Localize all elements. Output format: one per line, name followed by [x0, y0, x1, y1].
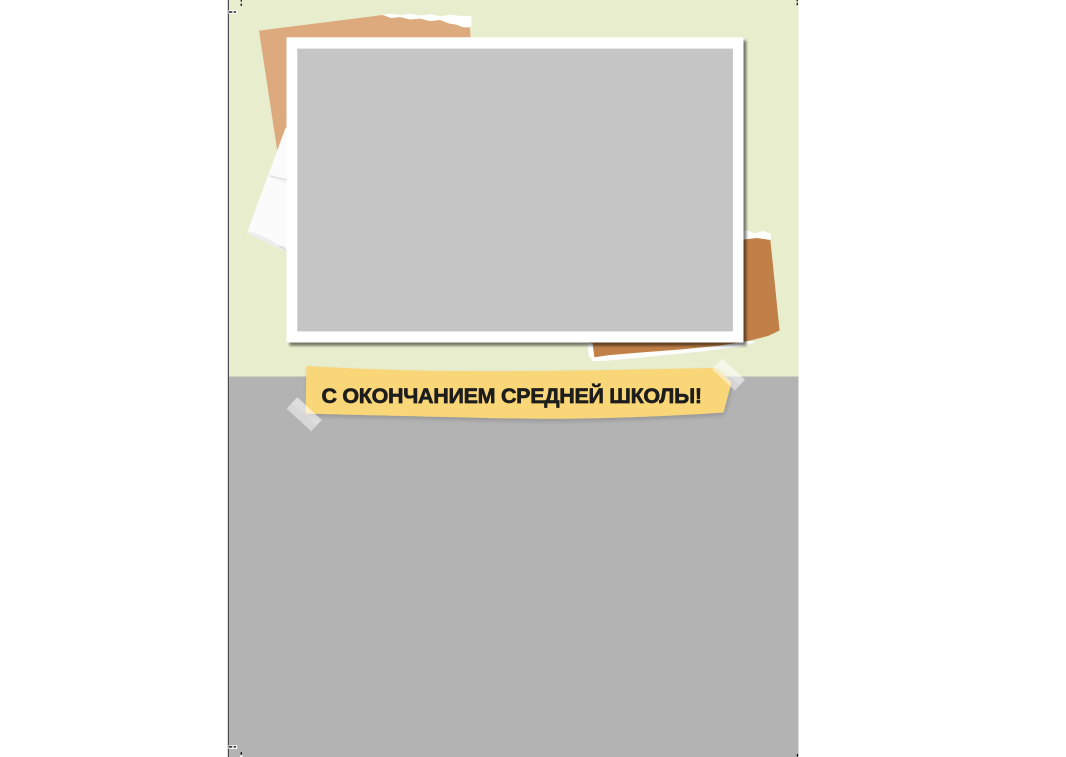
svg-text:С ОКОНЧАНИЕМ СРЕДНЕЙ ШКОЛЫ!: С ОКОНЧАНИЕМ СРЕДНЕЙ ШКОЛЫ!: [322, 383, 703, 408]
